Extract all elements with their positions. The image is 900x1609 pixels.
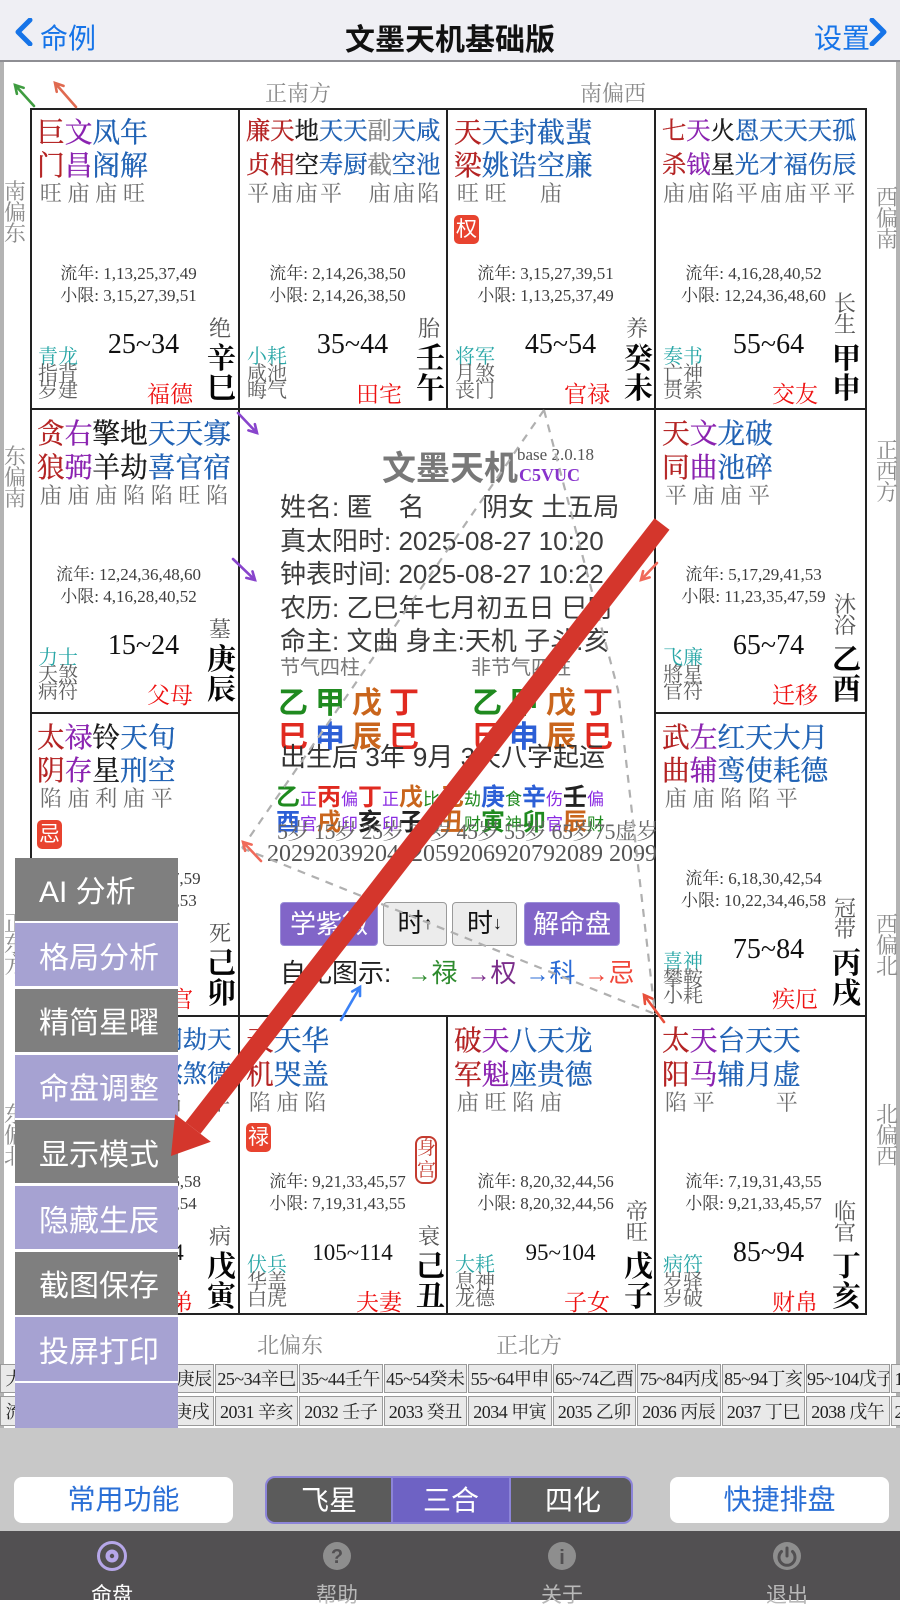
svg-text:?: ? xyxy=(331,1546,343,1568)
svg-text:i: i xyxy=(559,1547,565,1569)
